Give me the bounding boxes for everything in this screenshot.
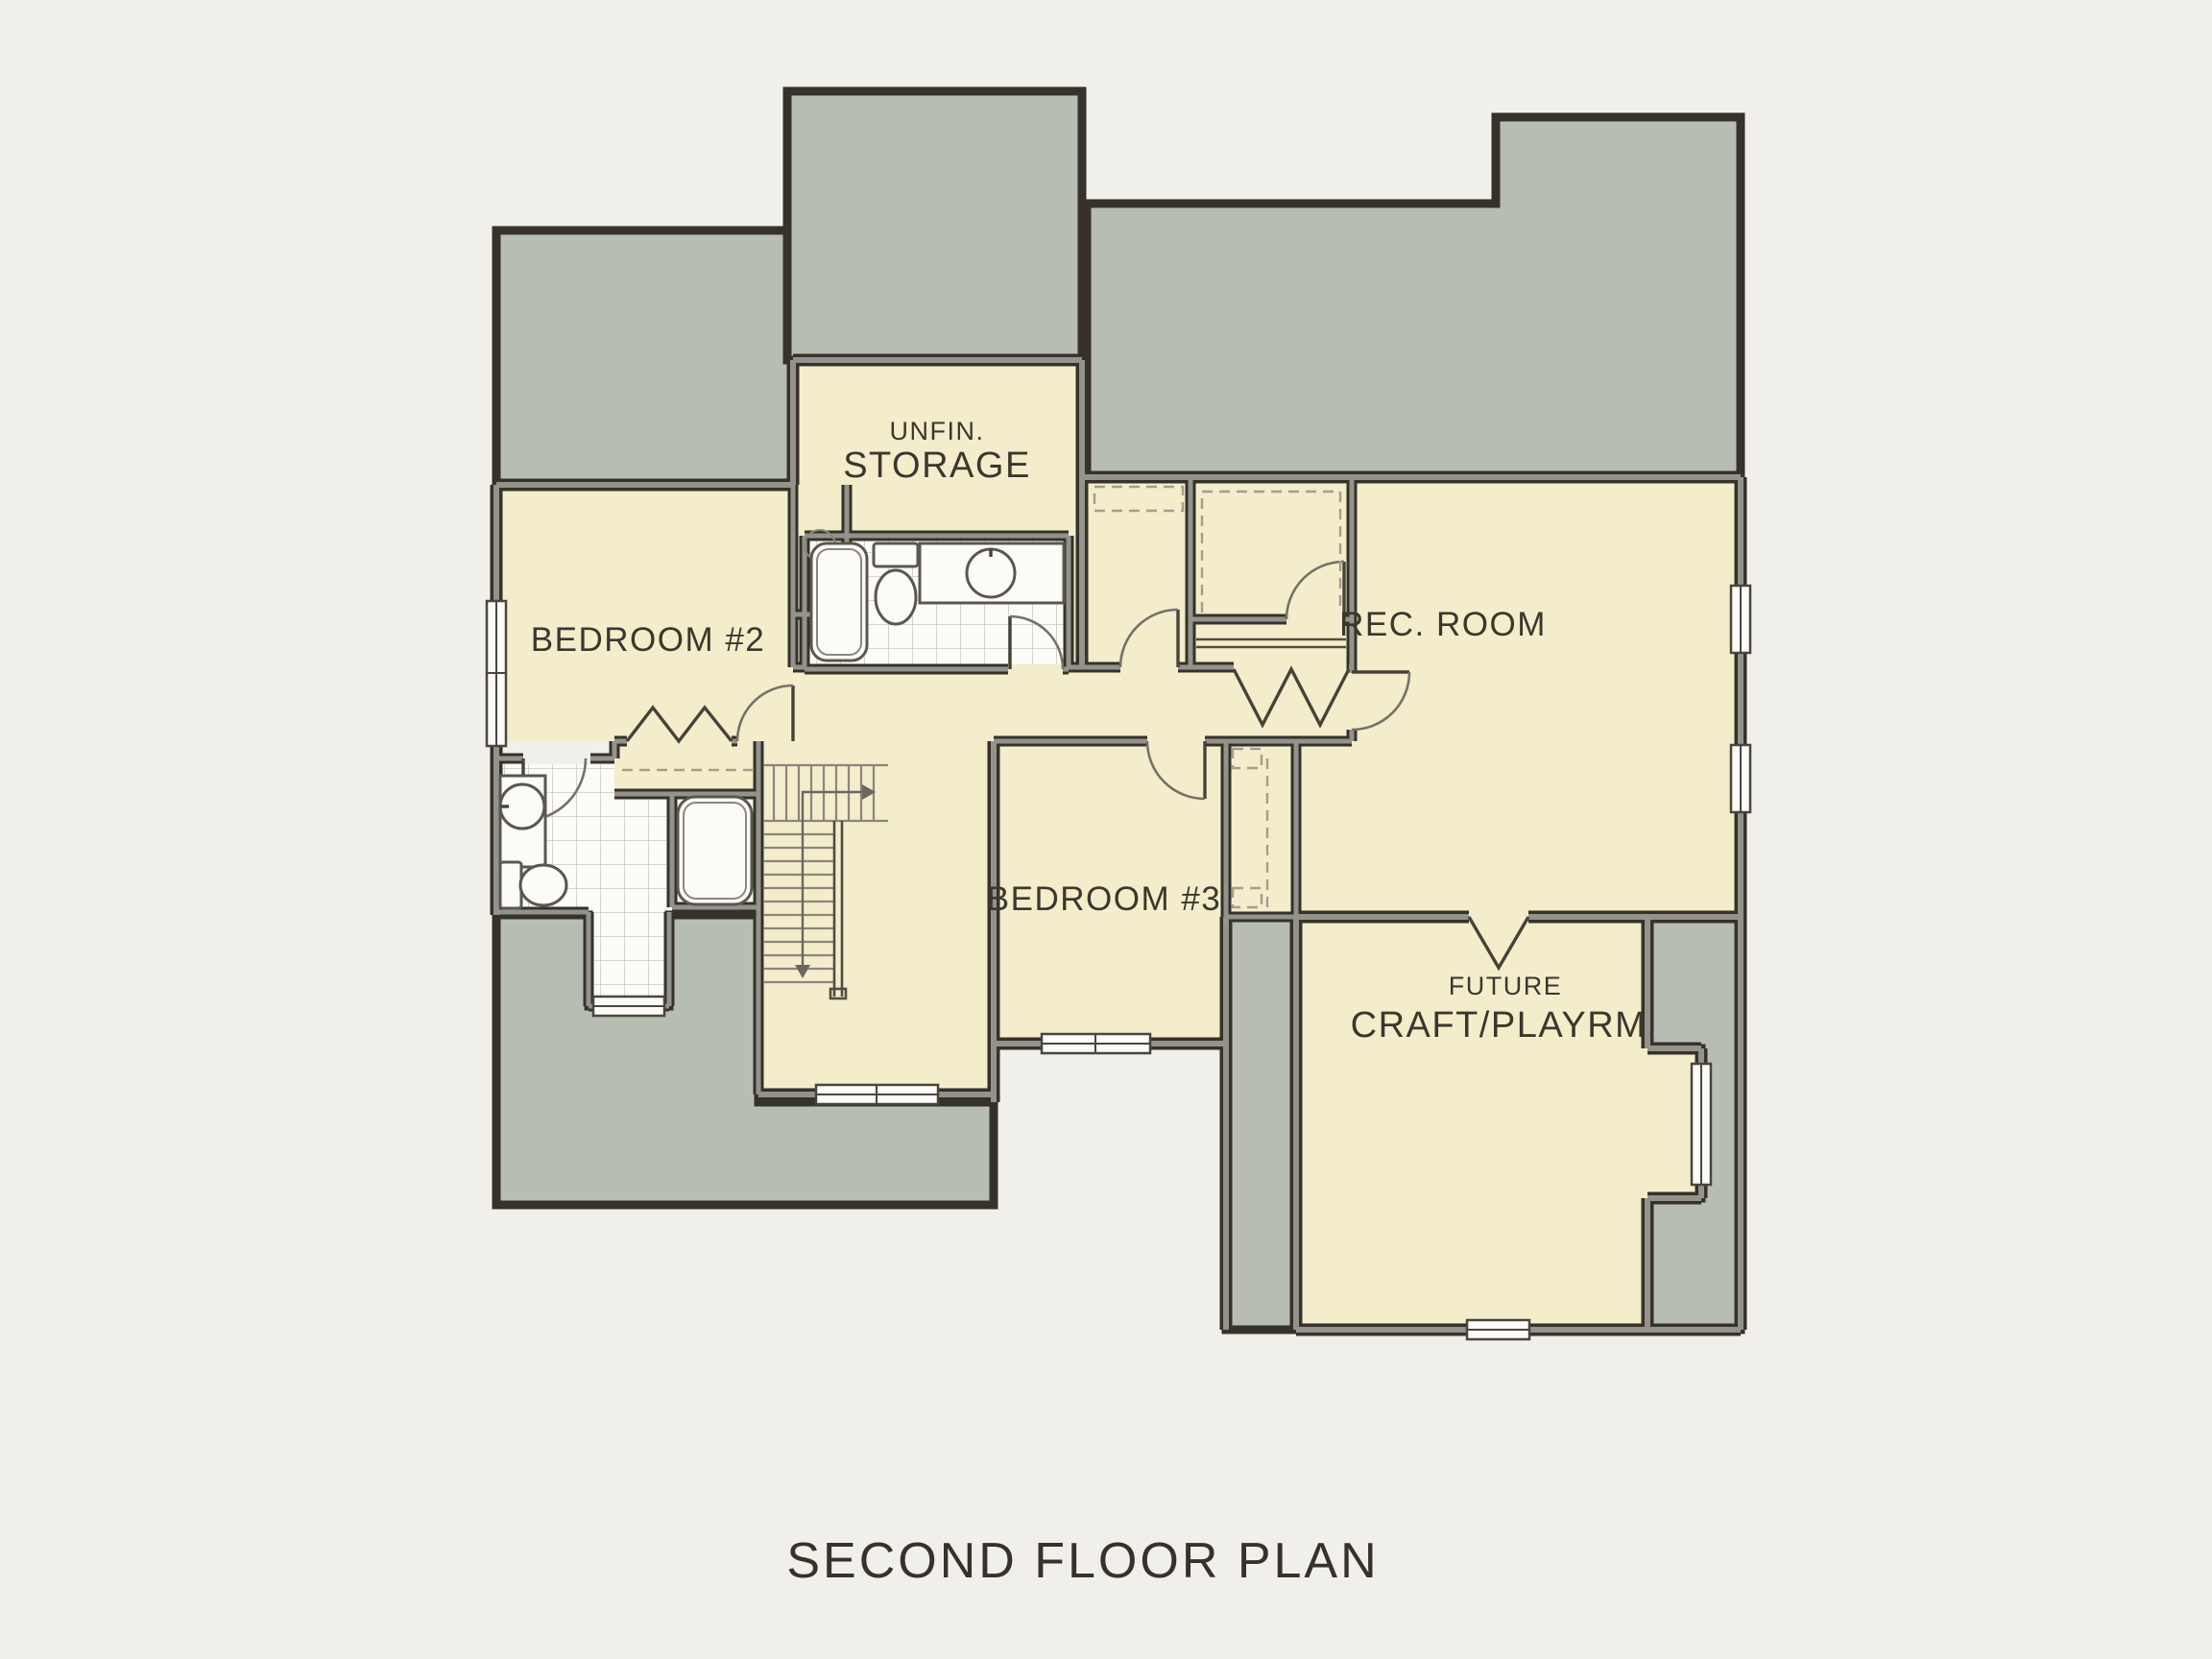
window-rec-lower xyxy=(1731,745,1750,812)
window-bedroom3 xyxy=(1042,1034,1150,1053)
attic-top-left xyxy=(496,230,793,485)
window-rec-upper xyxy=(1731,586,1750,653)
floor-plan-page: UNFIN. STORAGE BEDROOM #2 REC. ROOM BEDR… xyxy=(0,0,2212,1659)
toilet2-icon xyxy=(500,862,566,908)
bathtub-icon xyxy=(811,543,867,661)
label-craft-line1: FUTURE xyxy=(1449,972,1563,1000)
window-stair-hall xyxy=(816,1085,938,1104)
window-craft-bay xyxy=(1692,1064,1711,1185)
label-craft-line2: CRAFT/PLAYRM. xyxy=(1351,1005,1659,1046)
label-rec-room: REC. ROOM xyxy=(1339,606,1547,643)
plan-title: SECOND FLOOR PLAN xyxy=(786,1533,1379,1589)
room-rec xyxy=(1352,477,1741,917)
label-bedroom3: BEDROOM #3 xyxy=(987,880,1222,918)
window-bath-bay xyxy=(593,997,664,1016)
closet-column xyxy=(1082,475,1190,667)
sink-vanity-icon xyxy=(920,543,1064,603)
label-storage-line1: UNFIN. xyxy=(890,417,985,445)
closet-bedroom2 xyxy=(614,741,758,794)
window-bedroom2-left xyxy=(487,601,506,746)
window-craft-bottom xyxy=(1467,1320,1529,1339)
stair-hall xyxy=(758,741,994,1094)
room-bedroom2 xyxy=(496,485,793,741)
sink-vanity2-icon xyxy=(500,776,545,867)
room-rec-lower-left xyxy=(1296,741,1352,917)
label-bedroom2: BEDROOM #2 xyxy=(531,621,766,659)
floor-plan-drawing: UNFIN. STORAGE BEDROOM #2 REC. ROOM BEDR… xyxy=(0,0,2212,1659)
hall-band xyxy=(793,667,1352,741)
label-storage-line2: STORAGE xyxy=(843,445,1031,486)
bathtub2-icon xyxy=(678,797,752,904)
attic-top-center xyxy=(787,91,1082,360)
attic-strip-left-of-craft xyxy=(1226,917,1296,1330)
attic-top-right xyxy=(1087,117,1741,475)
toilet-icon xyxy=(874,543,918,624)
